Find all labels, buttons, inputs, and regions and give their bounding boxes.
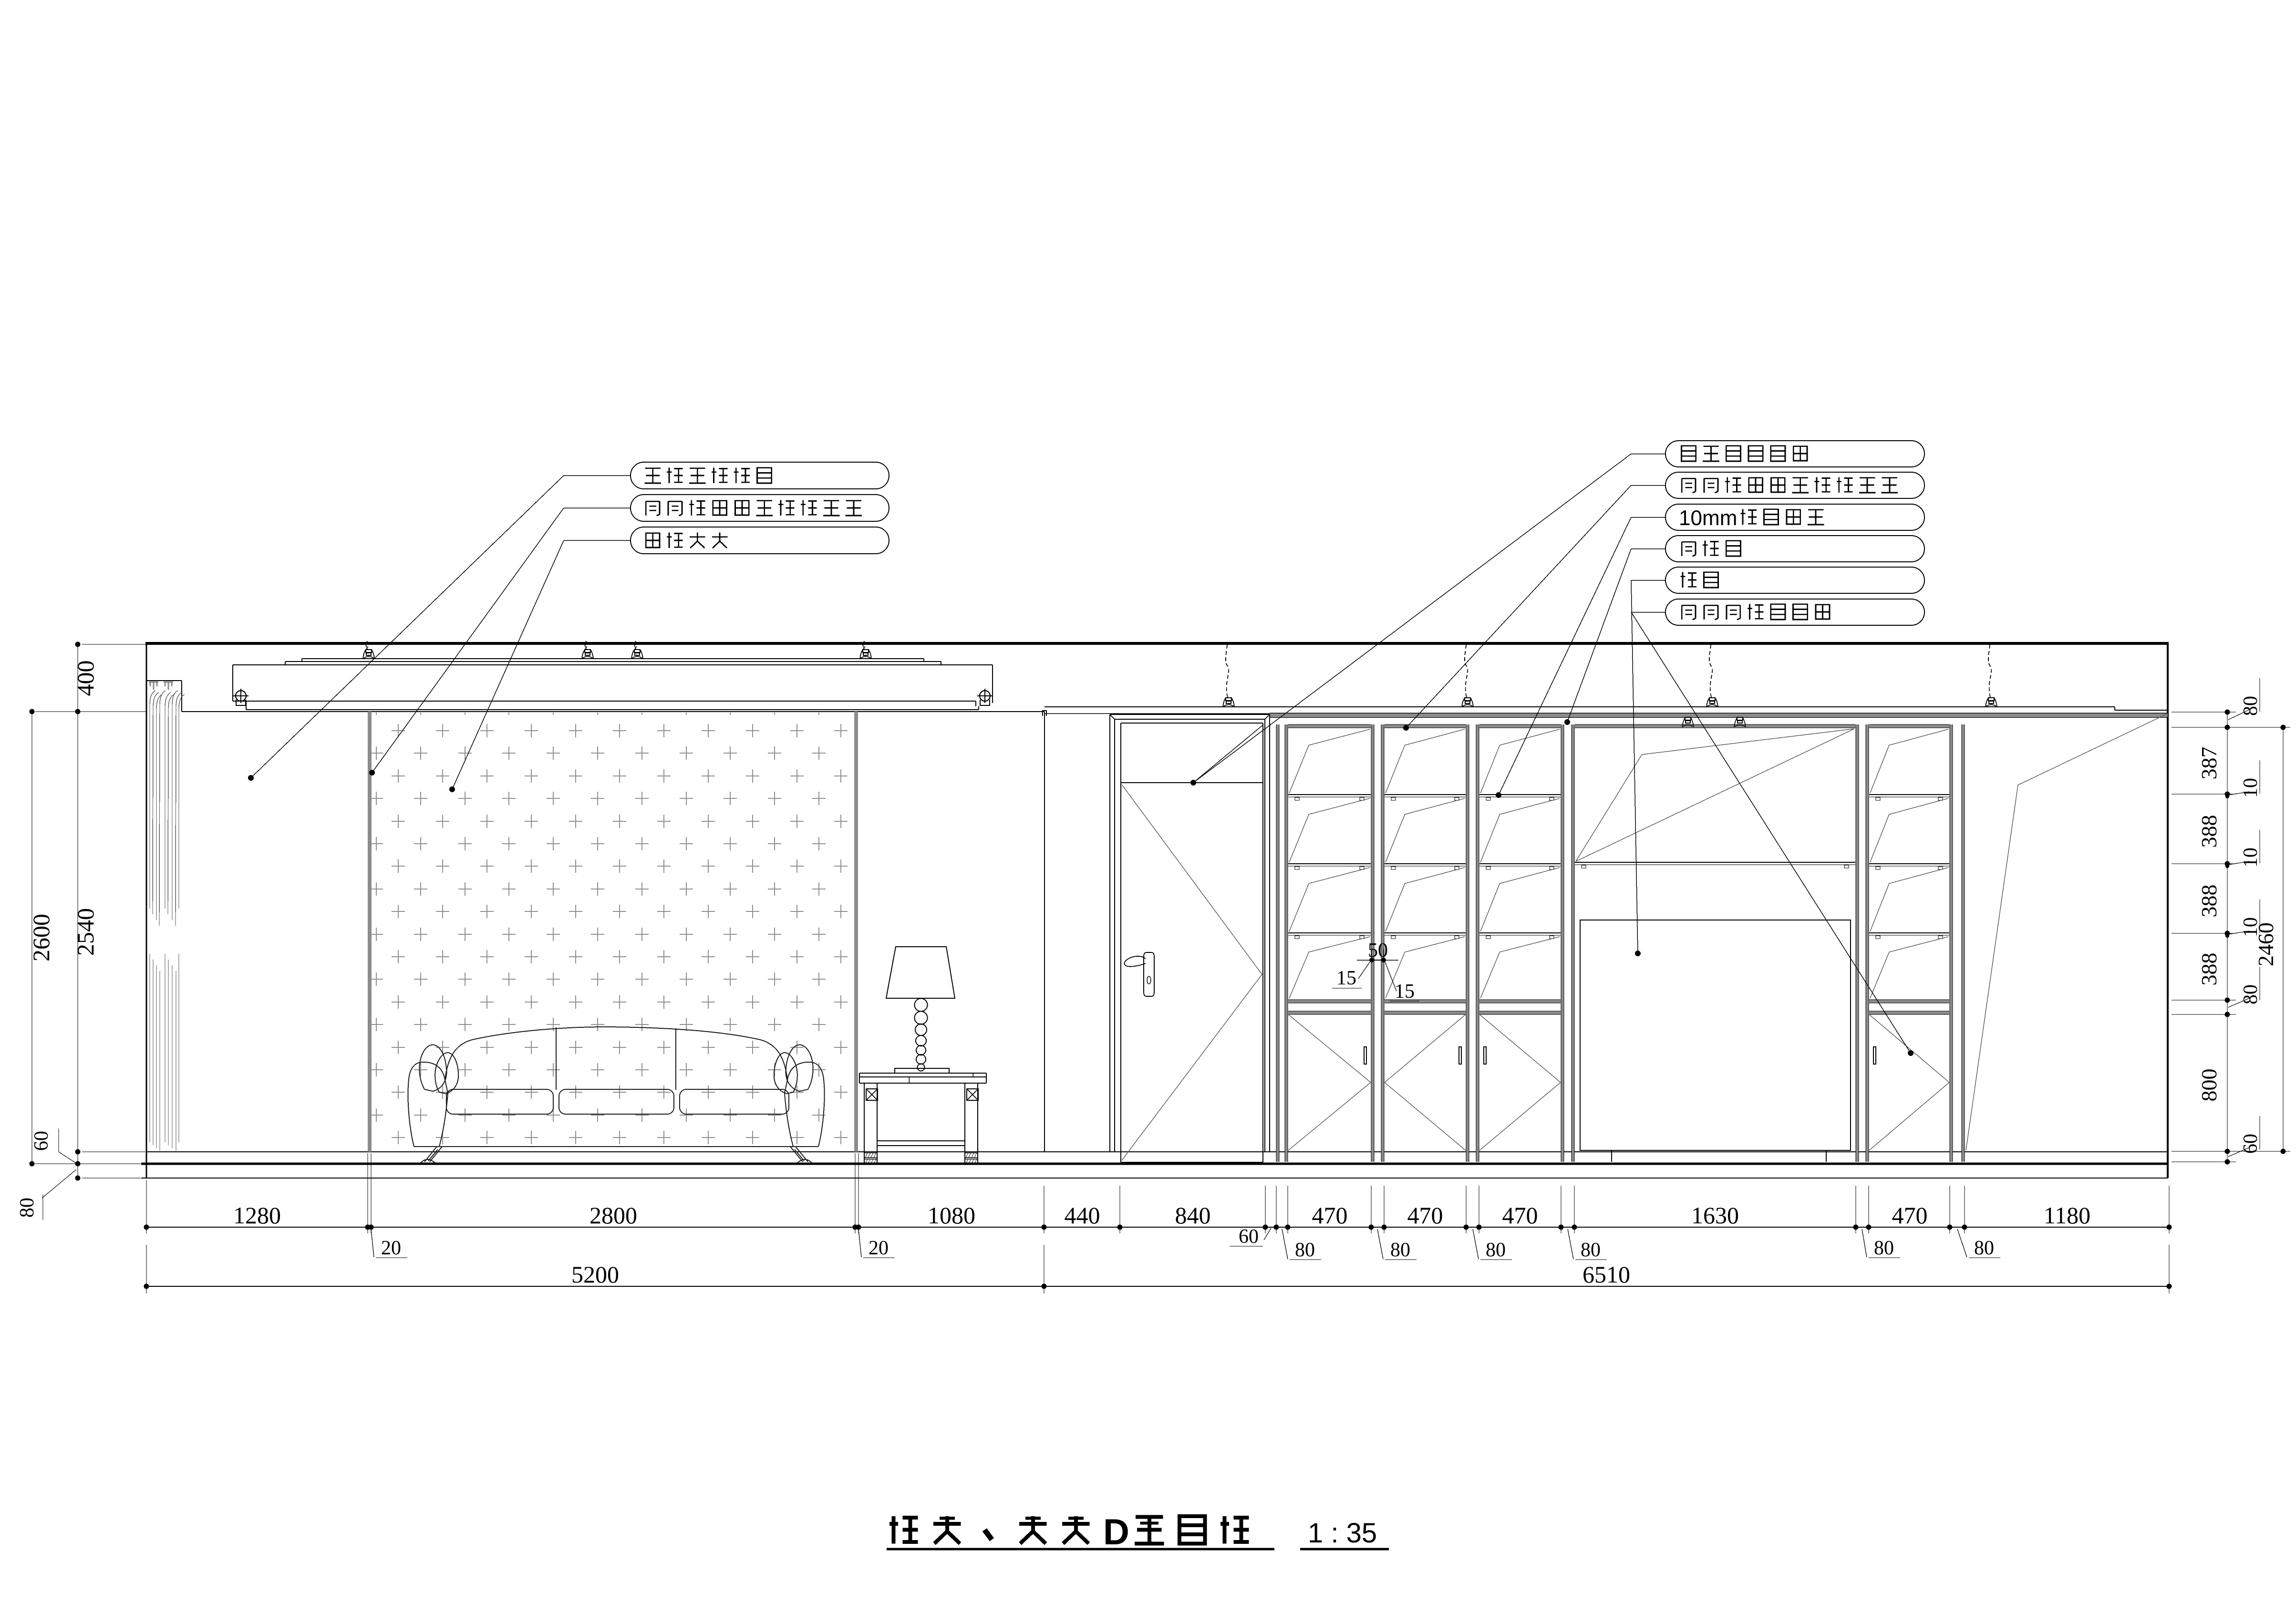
svg-text:440: 440 (1065, 1202, 1100, 1229)
svg-text:80: 80 (1874, 1237, 1894, 1259)
svg-text:388: 388 (2197, 953, 2221, 986)
svg-text:2800: 2800 (590, 1202, 637, 1229)
svg-text:60: 60 (2240, 1134, 2262, 1154)
svg-text:80: 80 (2240, 984, 2262, 1004)
svg-text:80: 80 (1974, 1237, 1994, 1259)
svg-text:15: 15 (1395, 981, 1415, 1003)
svg-text:388: 388 (2197, 885, 2221, 918)
svg-text:60: 60 (31, 1131, 52, 1151)
svg-text:D: D (1103, 1512, 1129, 1552)
svg-text:20: 20 (869, 1237, 889, 1259)
svg-text:80: 80 (1295, 1239, 1315, 1261)
svg-text:10: 10 (2240, 778, 2262, 798)
svg-text:388: 388 (2197, 815, 2221, 848)
svg-text:80: 80 (16, 1198, 38, 1218)
svg-text:1280: 1280 (233, 1202, 281, 1229)
svg-text:1630: 1630 (1691, 1202, 1739, 1229)
svg-text:470: 470 (1502, 1202, 1538, 1229)
svg-text:1180: 1180 (2044, 1202, 2090, 1229)
svg-text:15: 15 (1336, 967, 1356, 989)
svg-text:60: 60 (1239, 1226, 1259, 1248)
svg-text:2540: 2540 (72, 908, 99, 956)
svg-text:470: 470 (1312, 1202, 1348, 1229)
svg-text:80: 80 (1390, 1239, 1410, 1261)
svg-text:80: 80 (1581, 1239, 1601, 1261)
svg-text:20: 20 (381, 1237, 401, 1259)
svg-text:470: 470 (1892, 1202, 1928, 1229)
svg-text:80: 80 (2240, 696, 2262, 716)
svg-text:2600: 2600 (28, 914, 54, 962)
svg-text:800: 800 (2197, 1069, 2221, 1102)
svg-text:5200: 5200 (571, 1261, 619, 1288)
svg-text:10: 10 (2240, 848, 2262, 868)
svg-text:470: 470 (1407, 1202, 1443, 1229)
svg-text:1080: 1080 (928, 1202, 975, 1229)
svg-text:387: 387 (2197, 747, 2221, 780)
svg-text:400: 400 (72, 661, 99, 696)
svg-text:80: 80 (1486, 1239, 1506, 1261)
svg-text:50: 50 (1368, 940, 1388, 962)
svg-text:10mm: 10mm (1679, 507, 1738, 530)
svg-text:2460: 2460 (2254, 922, 2278, 966)
svg-text:840: 840 (1175, 1202, 1211, 1229)
svg-text:6510: 6510 (1582, 1261, 1630, 1288)
svg-text:1 : 35: 1 : 35 (1308, 1518, 1377, 1549)
